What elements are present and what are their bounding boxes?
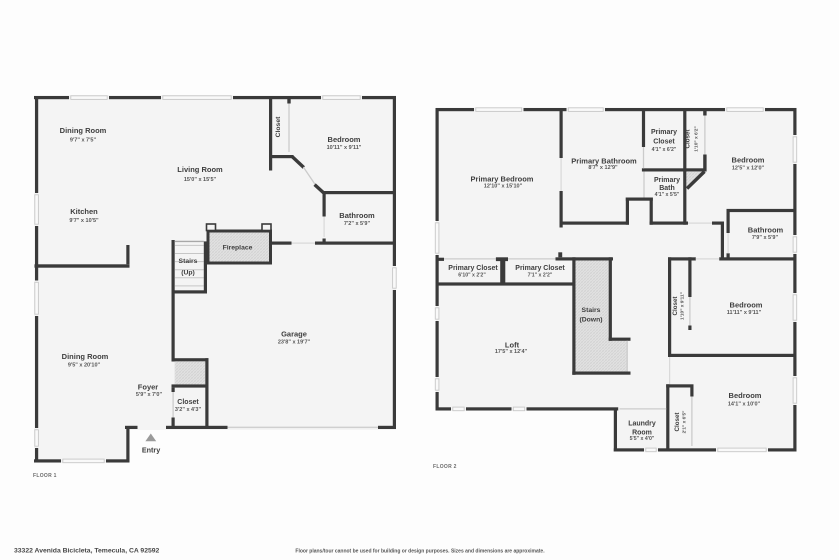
svg-text:Garage: Garage bbox=[281, 330, 307, 339]
svg-text:10'11" x 9'11": 10'11" x 9'11" bbox=[327, 145, 362, 151]
svg-text:FLOOR 2: FLOOR 2 bbox=[433, 464, 457, 470]
svg-text:Foyer: Foyer bbox=[138, 383, 159, 392]
svg-text:7'2" x 5'9": 7'2" x 5'9" bbox=[344, 221, 371, 227]
svg-text:Closet: Closet bbox=[674, 413, 681, 432]
svg-text:Dining Room: Dining Room bbox=[62, 352, 109, 361]
svg-text:Stairs: Stairs bbox=[582, 307, 601, 314]
svg-text:3'2" x 4'3": 3'2" x 4'3" bbox=[175, 407, 202, 413]
svg-text:1'10" x 6'2": 1'10" x 6'2" bbox=[693, 126, 699, 152]
svg-text:Closet: Closet bbox=[275, 116, 282, 138]
svg-text:(Down): (Down) bbox=[579, 317, 602, 324]
svg-text:8'7" x 12'9": 8'7" x 12'9" bbox=[588, 165, 618, 171]
svg-text:17'5" x 12'4": 17'5" x 12'4" bbox=[495, 349, 528, 355]
svg-text:Kitchen: Kitchen bbox=[70, 207, 98, 216]
svg-text:7'9" x 5'9": 7'9" x 5'9" bbox=[752, 235, 779, 241]
svg-text:Bathroom: Bathroom bbox=[339, 211, 375, 220]
svg-text:Primary: Primary bbox=[654, 177, 680, 184]
svg-text:Primary: Primary bbox=[651, 129, 677, 136]
svg-text:Primary Closet: Primary Closet bbox=[448, 265, 498, 272]
svg-text:4'1" x 6'2": 4'1" x 6'2" bbox=[652, 147, 677, 153]
svg-text:Closet: Closet bbox=[177, 399, 199, 406]
svg-text:12'5" x 12'0": 12'5" x 12'0" bbox=[732, 166, 765, 172]
svg-text:Bathroom: Bathroom bbox=[748, 226, 784, 235]
svg-text:1'10" x 9'11": 1'10" x 9'11" bbox=[680, 292, 686, 320]
svg-text:5'5" x 4'0": 5'5" x 4'0" bbox=[630, 436, 655, 442]
svg-text:5'9" x 7'0": 5'9" x 7'0" bbox=[136, 392, 163, 398]
svg-text:Bedroom: Bedroom bbox=[729, 391, 762, 400]
svg-text:7'1" x 2'2": 7'1" x 2'2" bbox=[528, 272, 553, 278]
svg-text:Closet: Closet bbox=[685, 130, 692, 149]
svg-text:Floor plans/tour cannot be use: Floor plans/tour cannot be used for buil… bbox=[295, 549, 545, 555]
svg-text:33322 Avenida Bicicleta, Temec: 33322 Avenida Bicicleta, Temecula, CA 92… bbox=[14, 548, 160, 555]
svg-text:2'1" x 6'5": 2'1" x 6'5" bbox=[682, 411, 688, 434]
svg-text:9'5" x 20'10": 9'5" x 20'10" bbox=[68, 363, 101, 369]
svg-text:9'7" x 10'5": 9'7" x 10'5" bbox=[69, 218, 99, 224]
svg-text:Closet: Closet bbox=[672, 297, 679, 316]
svg-text:Primary Bedroom: Primary Bedroom bbox=[471, 175, 534, 184]
svg-text:Dining Room: Dining Room bbox=[60, 126, 107, 135]
svg-text:14'1" x 10'0": 14'1" x 10'0" bbox=[728, 402, 761, 408]
svg-text:4'1" x 5'5": 4'1" x 5'5" bbox=[655, 192, 680, 198]
svg-text:Living Room: Living Room bbox=[177, 165, 223, 174]
svg-text:12'10" x 15'10": 12'10" x 15'10" bbox=[484, 184, 523, 190]
svg-text:FLOOR 1: FLOOR 1 bbox=[33, 473, 57, 479]
svg-text:23'8" x 19'7": 23'8" x 19'7" bbox=[278, 340, 311, 346]
svg-text:Entry: Entry bbox=[142, 446, 160, 455]
svg-text:Bedroom: Bedroom bbox=[732, 156, 765, 165]
svg-text:15'0" x 15'5": 15'0" x 15'5" bbox=[184, 177, 217, 183]
svg-text:Fireplace: Fireplace bbox=[223, 245, 253, 252]
svg-text:11'11" x 9'11": 11'11" x 9'11" bbox=[727, 310, 762, 316]
svg-text:Bath: Bath bbox=[659, 185, 675, 192]
svg-text:(Up): (Up) bbox=[181, 270, 195, 277]
svg-text:Bedroom: Bedroom bbox=[730, 301, 763, 310]
svg-text:Stairs: Stairs bbox=[179, 258, 198, 265]
svg-text:Primary Closet: Primary Closet bbox=[515, 265, 565, 272]
svg-text:6'10" x 2'2": 6'10" x 2'2" bbox=[458, 272, 486, 278]
svg-text:Laundry: Laundry bbox=[628, 421, 656, 428]
svg-text:Bedroom: Bedroom bbox=[328, 135, 361, 144]
svg-text:Closet: Closet bbox=[653, 139, 675, 146]
svg-text:9'7" x 7'5": 9'7" x 7'5" bbox=[70, 138, 97, 144]
